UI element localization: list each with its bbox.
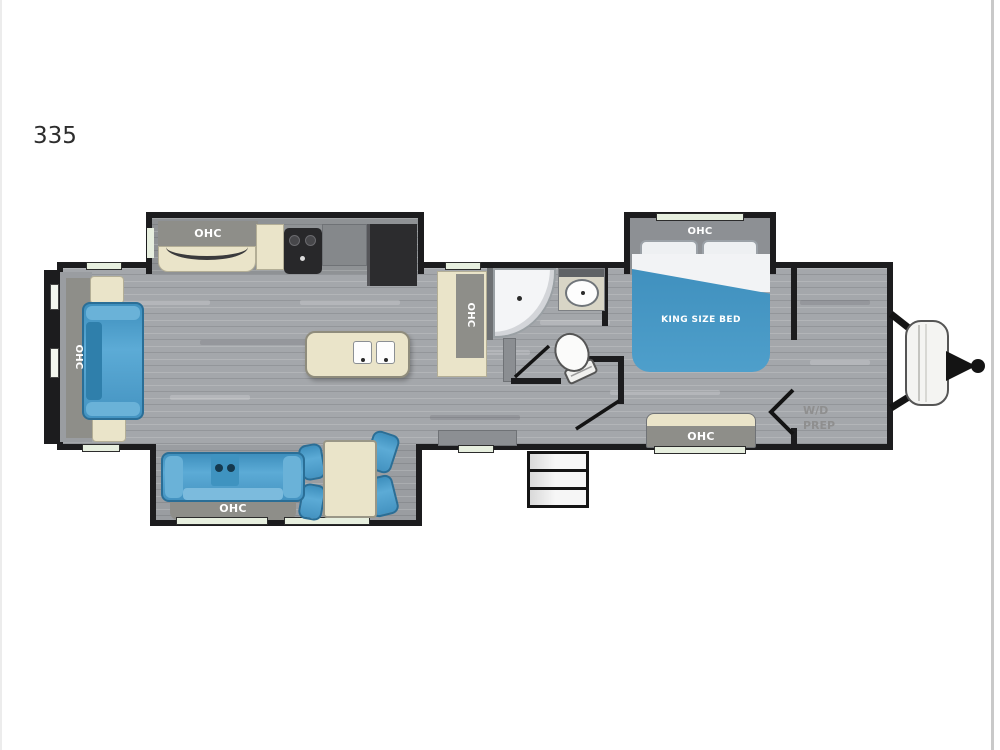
- cupholder-right: [227, 464, 235, 472]
- rear-bottom-wall-window: [82, 444, 120, 452]
- burner-right: [305, 235, 316, 246]
- bathroom-vanity: [558, 268, 605, 311]
- wd-prep-line1: W/D: [803, 403, 867, 418]
- bedroom-rear-ohc-label: OHC: [647, 431, 755, 442]
- slide-sofa-seat-edge: [183, 488, 283, 500]
- bathroom-top-wall-window: [445, 262, 481, 270]
- shower-drain: [517, 296, 522, 301]
- refrigerator: [367, 224, 417, 286]
- sink-drain-right: [384, 358, 388, 362]
- model-number-label: 335: [33, 123, 77, 149]
- bedroom-ohc-label: OHC: [660, 227, 740, 237]
- hallway-wall-vertical: [618, 356, 624, 404]
- bedroom-slide-window: [656, 213, 744, 221]
- hitch-frame: [891, 314, 952, 408]
- rear-top-wall-window: [86, 262, 122, 270]
- island-sink-left: [353, 341, 372, 364]
- cupholder-left: [215, 464, 223, 472]
- step-divider: [530, 469, 586, 472]
- rear-sofa: [82, 302, 144, 420]
- hitch-coupler: [946, 351, 985, 381]
- dinette-slide-window-left: [176, 517, 268, 525]
- vanity-faucet: [581, 291, 585, 295]
- rear-window-lower: [50, 348, 59, 378]
- slide-sofa: [161, 452, 305, 502]
- step-divider: [530, 487, 586, 490]
- floorplan-image: 335 OHC OHC: [0, 0, 1000, 750]
- dinette-slide-window-right: [284, 517, 370, 525]
- bedroom-bottom-window: [654, 446, 746, 454]
- rear-sofa-ohc-label: OHC: [73, 337, 83, 377]
- image-border-left: [0, 0, 2, 750]
- rear-end-table-top: [90, 276, 124, 304]
- wd-prep-label: W/D PREP: [803, 403, 867, 433]
- rear-sofa-arm-top: [86, 306, 140, 320]
- bottom-wall-window-left: [458, 445, 494, 453]
- bathroom-wall-stub: [503, 338, 516, 382]
- kitchen-slide-side-window: [147, 228, 154, 258]
- bathroom-bottom-wall: [511, 378, 561, 384]
- vanity-backsplash: [559, 269, 604, 277]
- bathroom-ohc-label: OHC: [465, 295, 475, 335]
- bedroom-front-wall-lower: [791, 428, 797, 450]
- bedroom-front-wall-upper: [791, 266, 797, 340]
- kitchen-island: [305, 331, 410, 378]
- kitchen-counter-edge-arc: [166, 247, 248, 260]
- bathroom-ohc-pantry: OHC: [437, 271, 487, 377]
- island-sink-right: [376, 341, 395, 364]
- rear-window-upper: [50, 284, 59, 310]
- rear-sofa-back-cushion: [86, 322, 102, 400]
- slide-sofa-console: [211, 454, 239, 486]
- stove-knob: [300, 256, 305, 261]
- kitchen-counter-right: [322, 224, 367, 266]
- sink-drain-left: [361, 358, 365, 362]
- wd-prep-line2: PREP: [803, 418, 867, 433]
- entry-steps: [527, 451, 589, 508]
- burner-left: [289, 235, 300, 246]
- slide-sofa-arm-left: [165, 456, 183, 498]
- bedroom-ohc-cabinet: OHC: [646, 413, 756, 448]
- dinette-table: [323, 440, 377, 518]
- slide-sofa-ohc-label: OHC: [170, 503, 296, 514]
- stove-cooktop: [284, 228, 322, 274]
- hallway-wall-horizontal: [562, 356, 624, 362]
- slide-sofa-arm-right: [283, 456, 301, 498]
- bottom-wall-cabinet: [438, 430, 517, 446]
- kitchen-counter-segment: [256, 224, 284, 270]
- image-border-right: [991, 0, 994, 750]
- vanity-sink: [565, 279, 599, 307]
- propane-tank: [906, 321, 948, 405]
- kitchen-ohc-cabinet: OHC: [158, 221, 258, 247]
- kitchen-counter: [158, 246, 256, 272]
- rear-sofa-arm-bottom: [86, 402, 140, 416]
- king-bed-label: KING SIZE BED: [632, 316, 770, 325]
- kitchen-ohc-label: OHC: [158, 228, 258, 239]
- bedroom-ohc-top: [647, 414, 755, 426]
